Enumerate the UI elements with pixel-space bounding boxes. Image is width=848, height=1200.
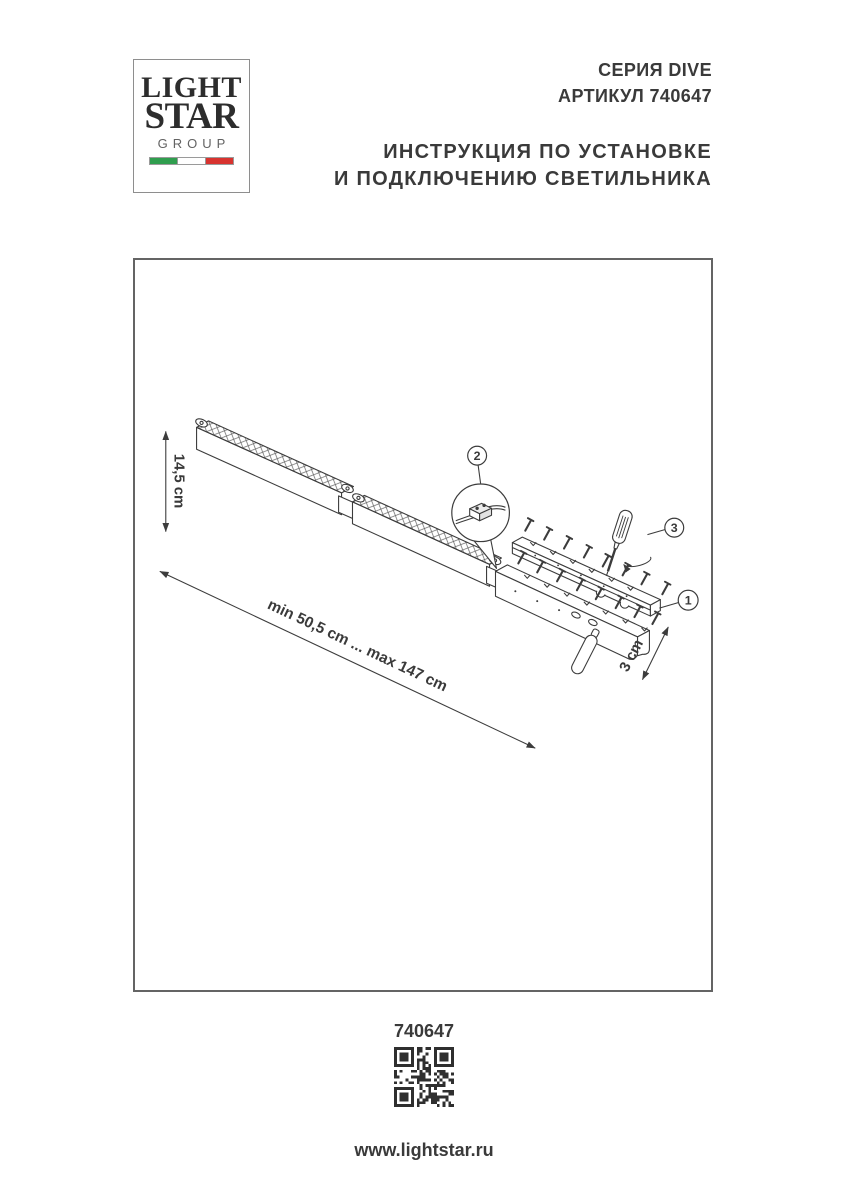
- instruction-title-line1: ИНСТРУКЦИЯ ПО УСТАНОВКЕ: [334, 139, 712, 166]
- flag-green-segment: [149, 157, 178, 165]
- qr-code: [394, 1047, 454, 1107]
- instruction-title-line2: И ПОДКЛЮЧЕНИЮ СВЕТИЛЬНИКА: [334, 166, 712, 193]
- footer-article-number: 740647: [0, 1021, 848, 1042]
- dimension-length-label: min 50,5 cm ... max 147 cm: [265, 596, 450, 695]
- flag-white-segment: [178, 157, 205, 165]
- lightstar-logo: LIGHT STAR GROUP: [133, 59, 250, 193]
- dimension-height-label: 14,5 cm: [171, 454, 187, 509]
- logo-star-text: STAR: [134, 101, 249, 133]
- callout-3-number: 3: [671, 521, 678, 535]
- series-label: СЕРИЯ DIVE: [334, 57, 712, 83]
- drawing-frame: 14,5 cm min 50,5 cm ... max 147 cm 3 cm …: [133, 258, 713, 992]
- callout-2-number: 2: [474, 449, 481, 463]
- website-url: www.lightstar.ru: [0, 1140, 848, 1161]
- technical-drawing: 14,5 cm min 50,5 cm ... max 147 cm 3 cm …: [135, 260, 711, 990]
- italian-flag-bar: [149, 157, 235, 165]
- fixture-bar-upper: [194, 417, 354, 515]
- article-label: АРТИКУЛ 740647: [334, 83, 712, 109]
- instruction-title: ИНСТРУКЦИЯ ПО УСТАНОВКЕ И ПОДКЛЮЧЕНИЮ СВ…: [334, 139, 712, 193]
- callout-1-number: 1: [685, 594, 692, 608]
- logo-group-text: GROUP: [134, 136, 249, 151]
- instruction-sheet-page: LIGHT STAR GROUP СЕРИЯ DIVE АРТИКУЛ 7406…: [0, 0, 848, 1200]
- length-dimension-arrow: [160, 571, 535, 748]
- flag-red-segment: [205, 157, 234, 165]
- qr-code-image: [394, 1047, 454, 1107]
- screwdriver: [600, 509, 651, 578]
- header-block: СЕРИЯ DIVE АРТИКУЛ 740647 ИНСТРУКЦИЯ ПО …: [334, 57, 712, 193]
